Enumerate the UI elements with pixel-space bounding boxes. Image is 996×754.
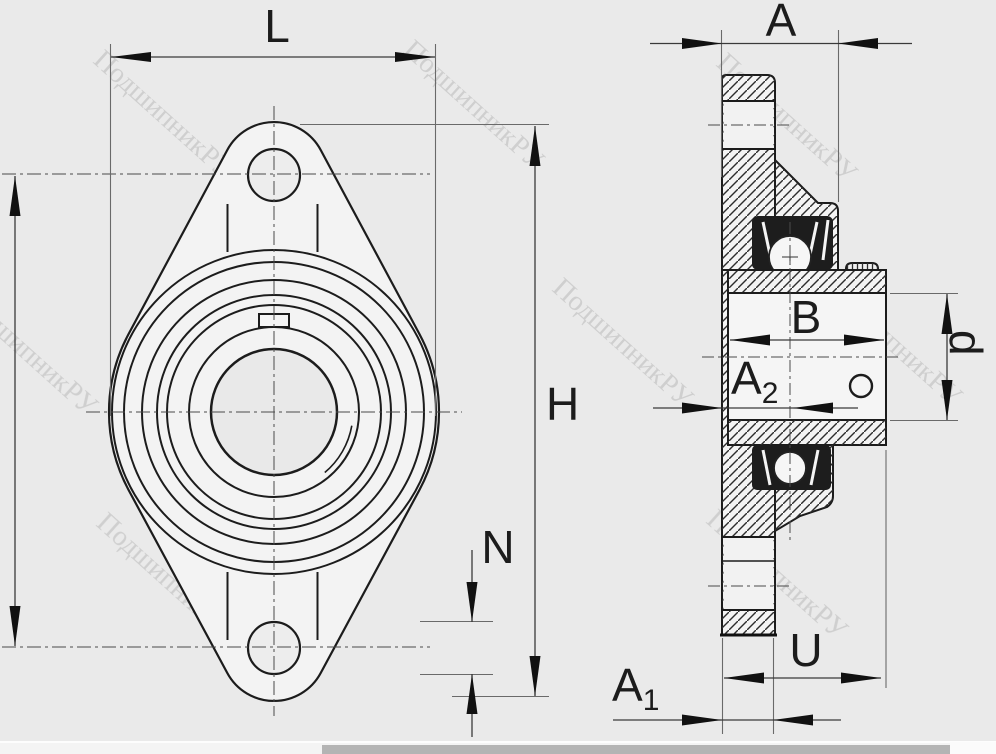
dim-label-U: U	[789, 624, 822, 676]
dim-label-H: H	[546, 378, 579, 430]
dim-label-B: B	[791, 291, 822, 343]
dim-label-d: d	[940, 330, 992, 356]
bolt-slot-bottom	[724, 538, 774, 609]
dim-label-A1: A1	[612, 659, 659, 717]
drawing-canvas: ПодшипникРУ ПодшипникРУ ПодшипникРУ Подш…	[0, 0, 996, 754]
horizontal-scrollbar-thumb[interactable]	[322, 745, 950, 754]
dim-label-A: A	[766, 0, 797, 46]
scrollbar-corner	[950, 742, 996, 754]
dim-label-N: N	[481, 521, 514, 573]
set-screw-hole	[850, 375, 872, 397]
dim-label-L: L	[264, 0, 290, 52]
technical-drawing: ПодшипникРУ ПодшипникРУ ПодшипникРУ Подш…	[0, 0, 996, 741]
